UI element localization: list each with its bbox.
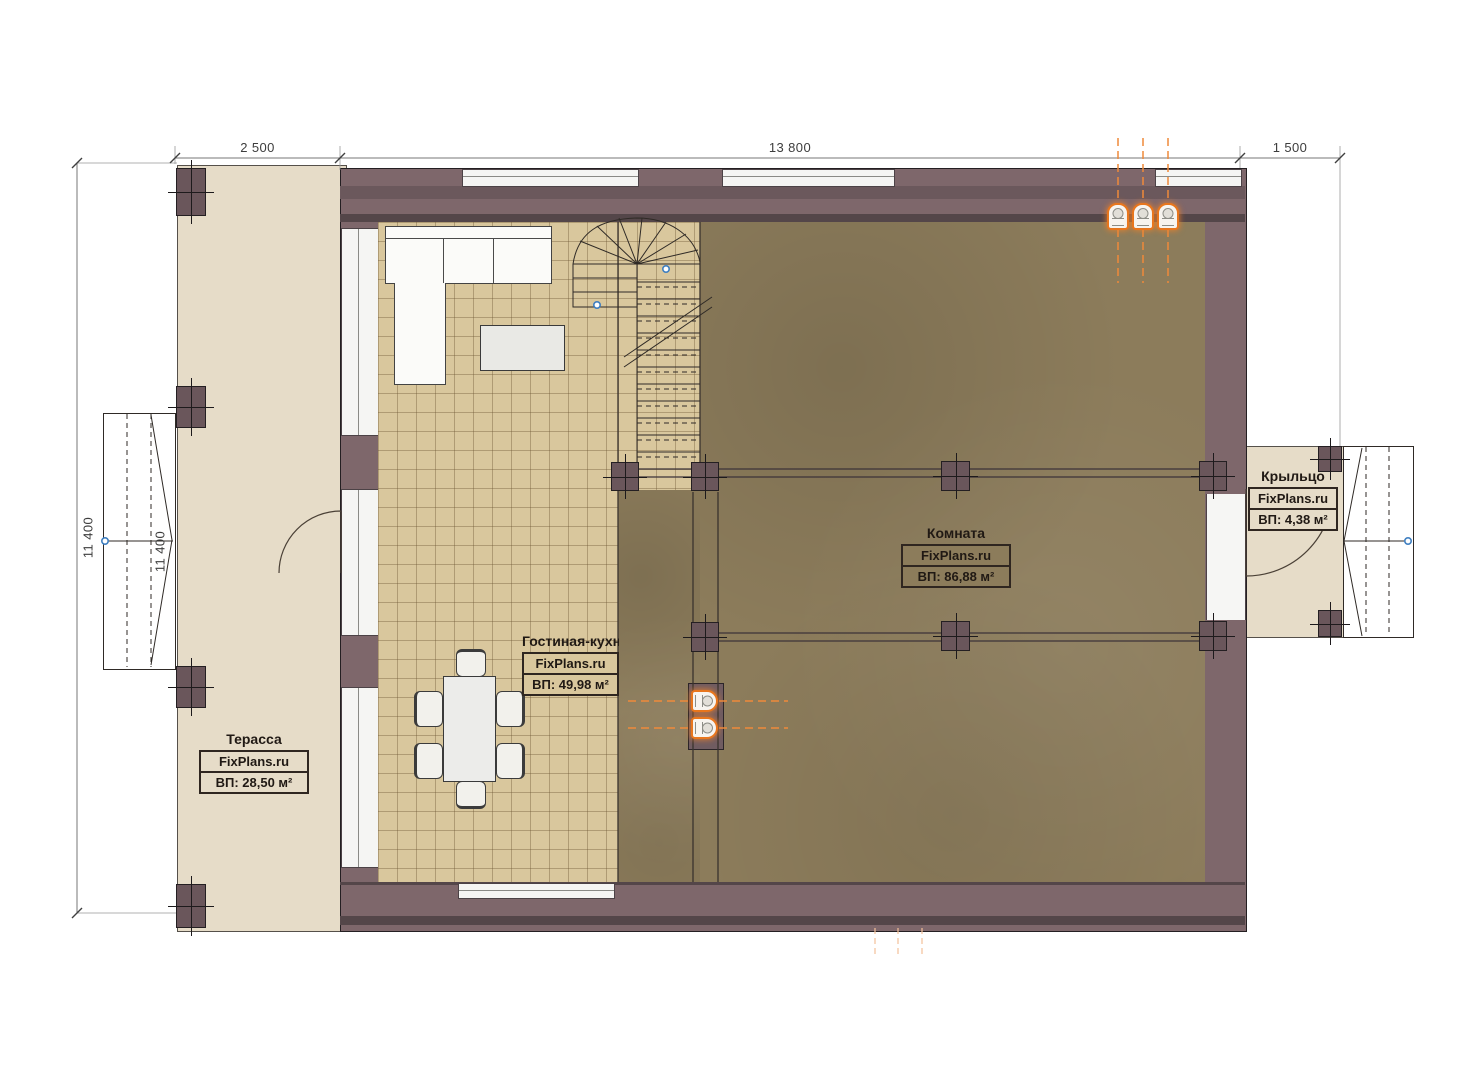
bottom-wall-shade bbox=[340, 916, 1245, 925]
sofa-chaise bbox=[394, 283, 446, 385]
terrace-post bbox=[176, 386, 206, 428]
column bbox=[1199, 461, 1227, 491]
column bbox=[941, 621, 970, 651]
toilet-fixture-icon bbox=[691, 690, 718, 712]
room-label-living-kitchen: Гостиная-кухня FixPlans.ru ВП: 49,98 м² bbox=[522, 633, 619, 696]
room-label-porch: Крыльцо FixPlans.ru ВП: 4,38 м² bbox=[1248, 468, 1338, 531]
room-info-box: FixPlans.ru ВП: 28,50 м² bbox=[199, 750, 309, 794]
dining-chair bbox=[414, 743, 443, 779]
sofa-cushion-divider bbox=[443, 238, 444, 283]
room-label-room: Комната FixPlans.ru ВП: 86,88 м² bbox=[901, 525, 1011, 588]
room-info-box: FixPlans.ru ВП: 4,38 м² bbox=[1248, 487, 1338, 531]
terrace-floor bbox=[177, 165, 347, 932]
room-info-box: FixPlans.ru ВП: 86,88 м² bbox=[901, 544, 1011, 588]
toilet-fixture-icon bbox=[1107, 203, 1129, 230]
dining-chair bbox=[456, 649, 486, 677]
watermark: FixPlans.ru bbox=[201, 752, 307, 773]
column bbox=[691, 462, 719, 491]
watermark: FixPlans.ru bbox=[903, 546, 1009, 567]
dining-chair bbox=[496, 743, 525, 779]
room-name: Комната bbox=[901, 525, 1011, 541]
column bbox=[1199, 621, 1227, 651]
window-top-2 bbox=[722, 169, 895, 187]
room-name: Крыльцо bbox=[1248, 468, 1338, 484]
toilet-fixture-icon bbox=[1157, 203, 1179, 230]
floor-plan: Терасса FixPlans.ru ВП: 28,50 м² Гостина… bbox=[0, 0, 1473, 1080]
window-top-1 bbox=[462, 169, 639, 187]
plumbing-axis-lines-bottom bbox=[875, 928, 922, 958]
terrace-post bbox=[176, 168, 206, 216]
room-area: ВП: 49,98 м² bbox=[524, 675, 617, 694]
coffee-table bbox=[480, 325, 565, 371]
dining-chair bbox=[414, 691, 443, 727]
dimension-left-inner: 11 400 bbox=[153, 522, 168, 582]
sofa bbox=[385, 226, 552, 284]
window-bottom-1 bbox=[458, 883, 615, 899]
dimension-top-center: 13 800 bbox=[340, 140, 1240, 155]
room-area: ВП: 4,38 м² bbox=[1250, 510, 1336, 529]
room-area: ВП: 86,88 м² bbox=[903, 567, 1009, 586]
porch-door-opening bbox=[1206, 494, 1246, 620]
porch-post bbox=[1318, 610, 1342, 637]
window-top-3 bbox=[1155, 169, 1242, 187]
dimension-top-left: 2 500 bbox=[175, 140, 340, 155]
window-left-3 bbox=[341, 687, 379, 868]
room-info-box: FixPlans.ru ВП: 49,98 м² bbox=[522, 652, 619, 696]
column bbox=[691, 622, 719, 652]
dining-table bbox=[443, 676, 496, 782]
watermark: FixPlans.ru bbox=[524, 654, 617, 675]
dining-chair bbox=[456, 781, 486, 809]
sofa-cushion-divider bbox=[493, 238, 494, 283]
sofa-backrest bbox=[386, 227, 551, 239]
dining-chair bbox=[496, 691, 525, 727]
dimension-top-right: 1 500 bbox=[1240, 140, 1340, 155]
porch-exterior-stairs bbox=[1343, 446, 1414, 638]
window-left-1 bbox=[341, 228, 379, 436]
stairwell-floor bbox=[618, 222, 700, 490]
window-left-2-terrace-door bbox=[341, 489, 379, 636]
room-name: Терасса bbox=[199, 731, 309, 747]
dimension-left-outer: 11 400 bbox=[81, 508, 96, 568]
watermark: FixPlans.ru bbox=[1250, 489, 1336, 510]
toilet-fixture-icon bbox=[691, 717, 718, 739]
room-label-terrace: Терасса FixPlans.ru ВП: 28,50 м² bbox=[199, 731, 309, 794]
top-wall-shade bbox=[340, 186, 1245, 199]
terrace-post bbox=[176, 666, 206, 708]
column bbox=[611, 462, 639, 491]
terrace-post bbox=[176, 884, 206, 928]
room-name: Гостиная-кухня bbox=[522, 633, 619, 649]
column bbox=[941, 461, 970, 491]
toilet-fixture-icon bbox=[1132, 203, 1154, 230]
room-area: ВП: 28,50 м² bbox=[201, 773, 307, 792]
